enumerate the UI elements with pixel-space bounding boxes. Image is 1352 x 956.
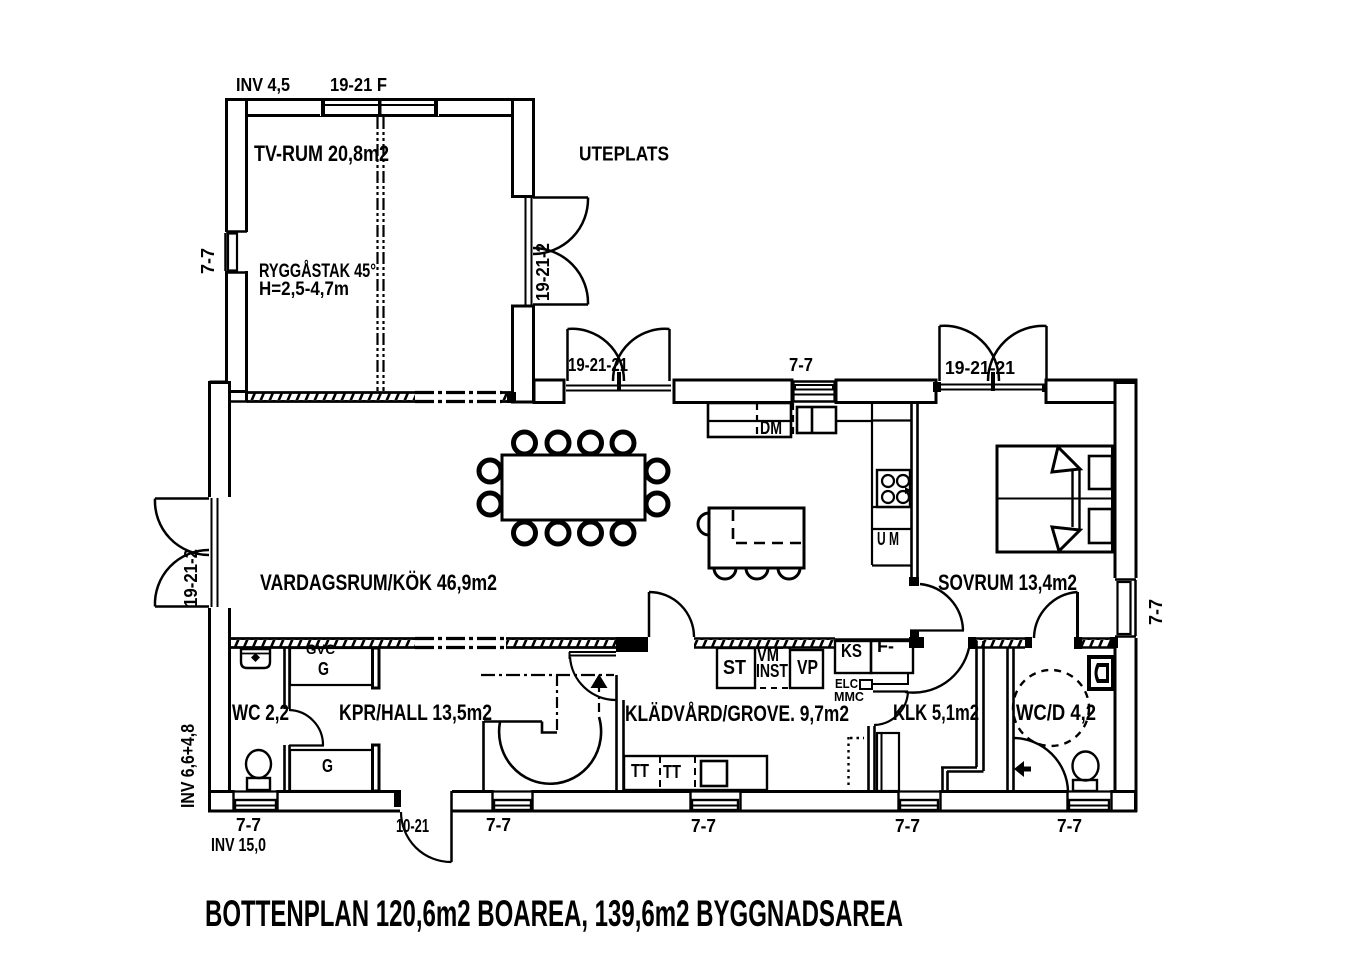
svg-text:VARDAGSRUM/KÖK 46,9m2: VARDAGSRUM/KÖK 46,9m2 <box>260 570 497 595</box>
svg-text:TT: TT <box>663 762 681 782</box>
svg-text:7-7: 7-7 <box>1146 599 1166 625</box>
svg-text:KLK 5,1m2: KLK 5,1m2 <box>893 700 979 725</box>
svg-text:H=2,5-4,7m: H=2,5-4,7m <box>259 279 349 300</box>
svg-text:TT: TT <box>631 761 649 781</box>
svg-text:KS: KS <box>841 641 862 661</box>
svg-text:DM: DM <box>760 418 782 438</box>
svg-text:INV 6,6+4,8: INV 6,6+4,8 <box>178 724 198 808</box>
svg-text:F-: F- <box>877 636 894 656</box>
svg-text:WC/D 4,2: WC/D 4,2 <box>1016 700 1096 725</box>
svg-text:7-7: 7-7 <box>691 816 716 836</box>
svg-text:WC 2,2: WC 2,2 <box>232 700 289 725</box>
svg-text:U M: U M <box>877 529 899 549</box>
svg-text:INST: INST <box>756 661 788 681</box>
svg-text:G: G <box>318 659 329 679</box>
svg-text:ST: ST <box>723 657 746 679</box>
svg-text:7-7: 7-7 <box>789 355 813 375</box>
svg-text:7-7: 7-7 <box>236 815 261 835</box>
svg-text:7-7: 7-7 <box>895 816 920 836</box>
svg-text:19-21-2: 19-21-2 <box>181 549 201 607</box>
svg-text:TV-RUM 20,8m2: TV-RUM 20,8m2 <box>254 141 389 166</box>
svg-text:19-21 F: 19-21 F <box>330 75 387 95</box>
svg-text:7-7: 7-7 <box>198 248 218 274</box>
svg-text:MMC: MMC <box>834 689 865 704</box>
svg-text:7-7: 7-7 <box>486 815 511 835</box>
svg-text:19-21-2: 19-21-2 <box>533 243 553 301</box>
svg-text:SOVRUM 13,4m2: SOVRUM 13,4m2 <box>938 570 1077 595</box>
svg-text:19-21-21: 19-21-21 <box>945 358 1015 378</box>
svg-text:KLÄDVÅRD/GROVE. 9,7m2: KLÄDVÅRD/GROVE. 9,7m2 <box>625 700 849 726</box>
svg-text:7-7: 7-7 <box>1057 816 1082 836</box>
svg-text:INV 15,0: INV 15,0 <box>211 835 266 855</box>
svg-text:G: G <box>322 756 333 776</box>
svg-text:INV 4,5: INV 4,5 <box>236 75 290 95</box>
svg-text:19-21-21: 19-21-21 <box>568 355 628 375</box>
svg-text:10-21: 10-21 <box>396 816 429 836</box>
svg-text:BOTTENPLAN 120,6m2 BOAREA, 139: BOTTENPLAN 120,6m2 BOAREA, 139,6m2 BYGGN… <box>205 892 903 934</box>
svg-text:VP: VP <box>797 657 818 679</box>
svg-text:GVC: GVC <box>306 641 335 657</box>
svg-text:KPR/HALL 13,5m2: KPR/HALL 13,5m2 <box>339 700 492 725</box>
svg-text:UTEPLATS: UTEPLATS <box>579 144 669 166</box>
